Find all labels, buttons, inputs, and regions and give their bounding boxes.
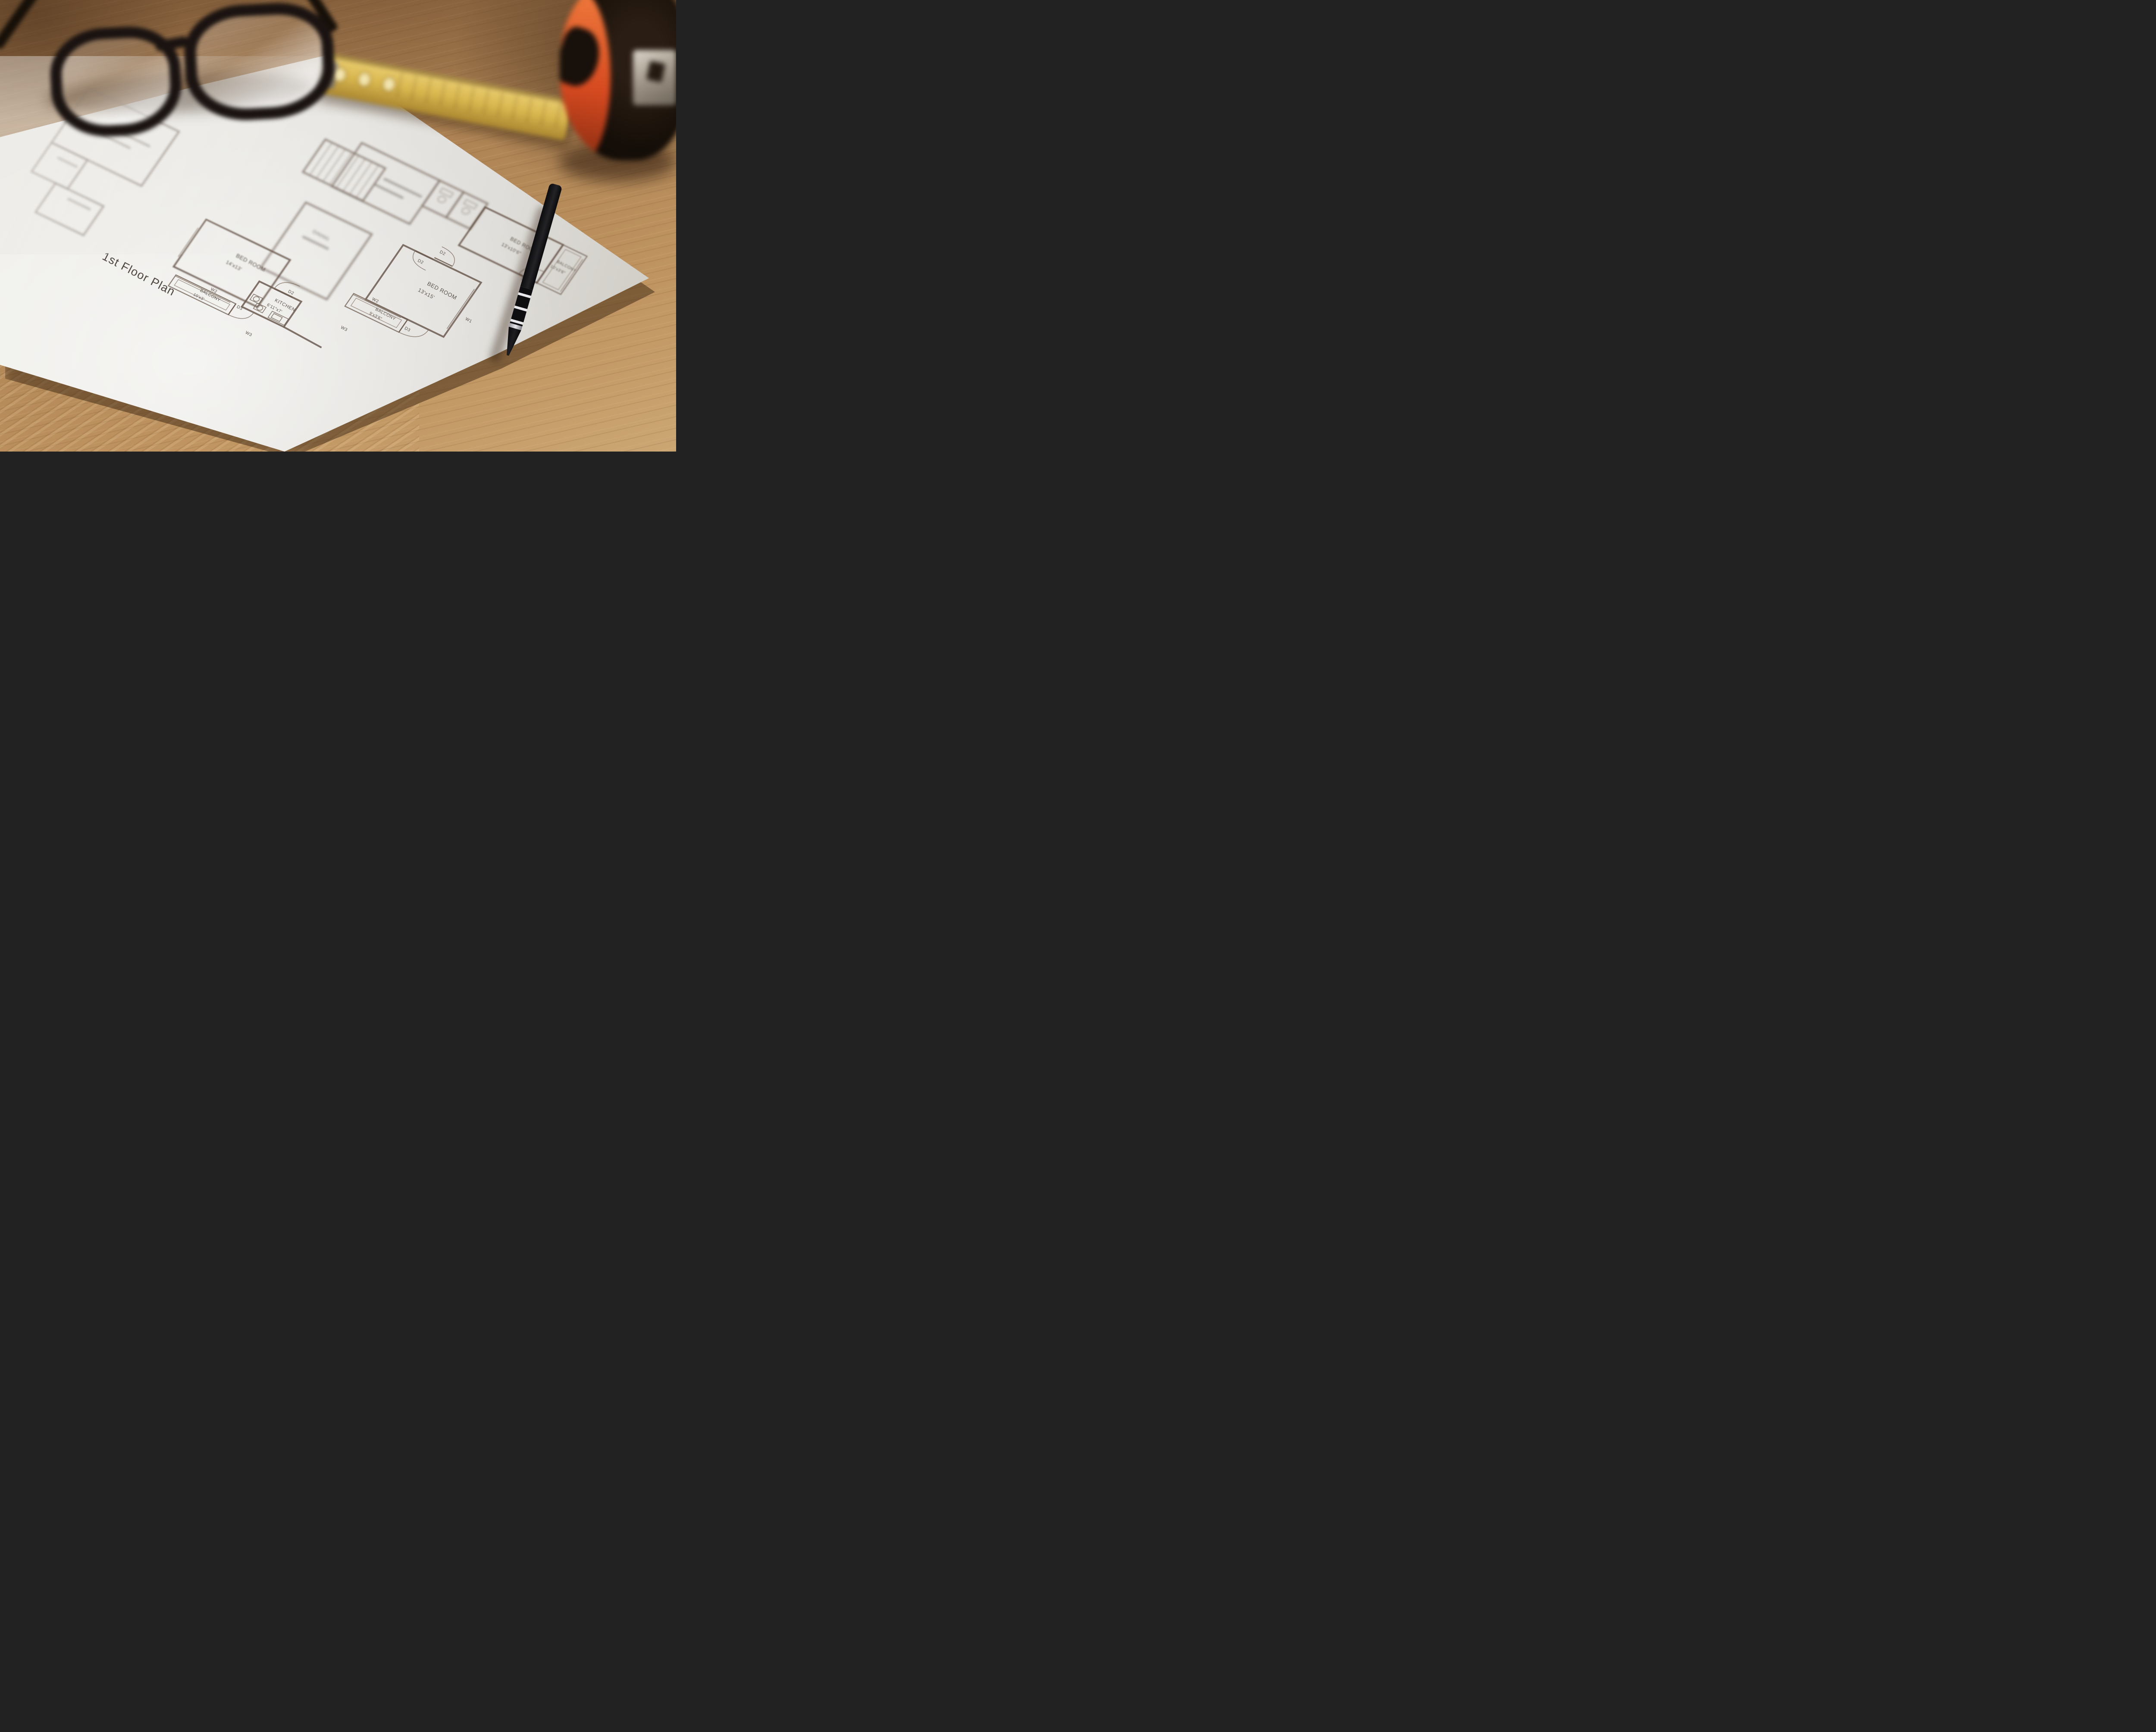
stair-step bbox=[323, 149, 345, 182]
stair-step bbox=[303, 139, 325, 172]
room-store-far-left bbox=[35, 183, 103, 235]
room-label: DINING bbox=[312, 229, 330, 242]
wall-segment bbox=[284, 327, 321, 348]
marker-label: W1 bbox=[464, 317, 473, 324]
stair-step bbox=[336, 155, 359, 188]
toilet-fixture bbox=[438, 196, 446, 202]
toilet-fixture bbox=[462, 208, 470, 214]
stair-step bbox=[316, 146, 338, 179]
window-symbol bbox=[178, 228, 198, 257]
door-swing-arc bbox=[399, 329, 429, 336]
marker-label: D3 bbox=[404, 326, 411, 333]
stair-step bbox=[350, 162, 372, 195]
toilet-tank bbox=[464, 200, 477, 209]
plan-title: 1st Floor Plan bbox=[100, 250, 178, 298]
floor-plan-drawing: 1st Floor PlanBALCONY10'x3'KITCHEN6'11"x… bbox=[0, 0, 676, 452]
balcony-inner-rail bbox=[174, 279, 230, 310]
marker-label: W3 bbox=[340, 325, 348, 333]
room-toilet-2 bbox=[446, 192, 488, 229]
door-swing-arc bbox=[519, 268, 544, 274]
room-toilet-1 bbox=[422, 181, 464, 218]
room-bedroom-far-left bbox=[52, 88, 179, 186]
room-label: 14'x13' bbox=[225, 260, 243, 272]
illegible-text-smudge bbox=[385, 179, 420, 196]
door-swing-arc bbox=[274, 282, 300, 289]
photo-scene: 1st Floor PlanBALCONY10'x3'KITCHEN6'11"x… bbox=[0, 0, 676, 452]
window-symbol bbox=[180, 229, 200, 257]
kitchen-sink-basin bbox=[271, 314, 282, 322]
room-bedroom-13x10 bbox=[459, 207, 563, 283]
marker-label: D2 bbox=[439, 250, 446, 257]
marker-label: D2 bbox=[417, 258, 424, 265]
window-symbol bbox=[354, 294, 401, 317]
illegible-text-smudge bbox=[69, 199, 90, 209]
stove-burner-ring bbox=[253, 297, 259, 301]
door-leaf bbox=[415, 251, 433, 259]
kitchen-sink bbox=[268, 311, 288, 325]
stair-step bbox=[343, 159, 365, 191]
marker-label: W3 bbox=[244, 330, 253, 338]
room-toilet-far-left bbox=[31, 143, 88, 189]
door-swing-arc bbox=[229, 313, 254, 319]
stair-step bbox=[329, 152, 352, 185]
toilet-tank bbox=[440, 188, 453, 197]
illegible-text-smudge bbox=[103, 135, 130, 148]
illegible-text-smudge bbox=[59, 158, 77, 166]
